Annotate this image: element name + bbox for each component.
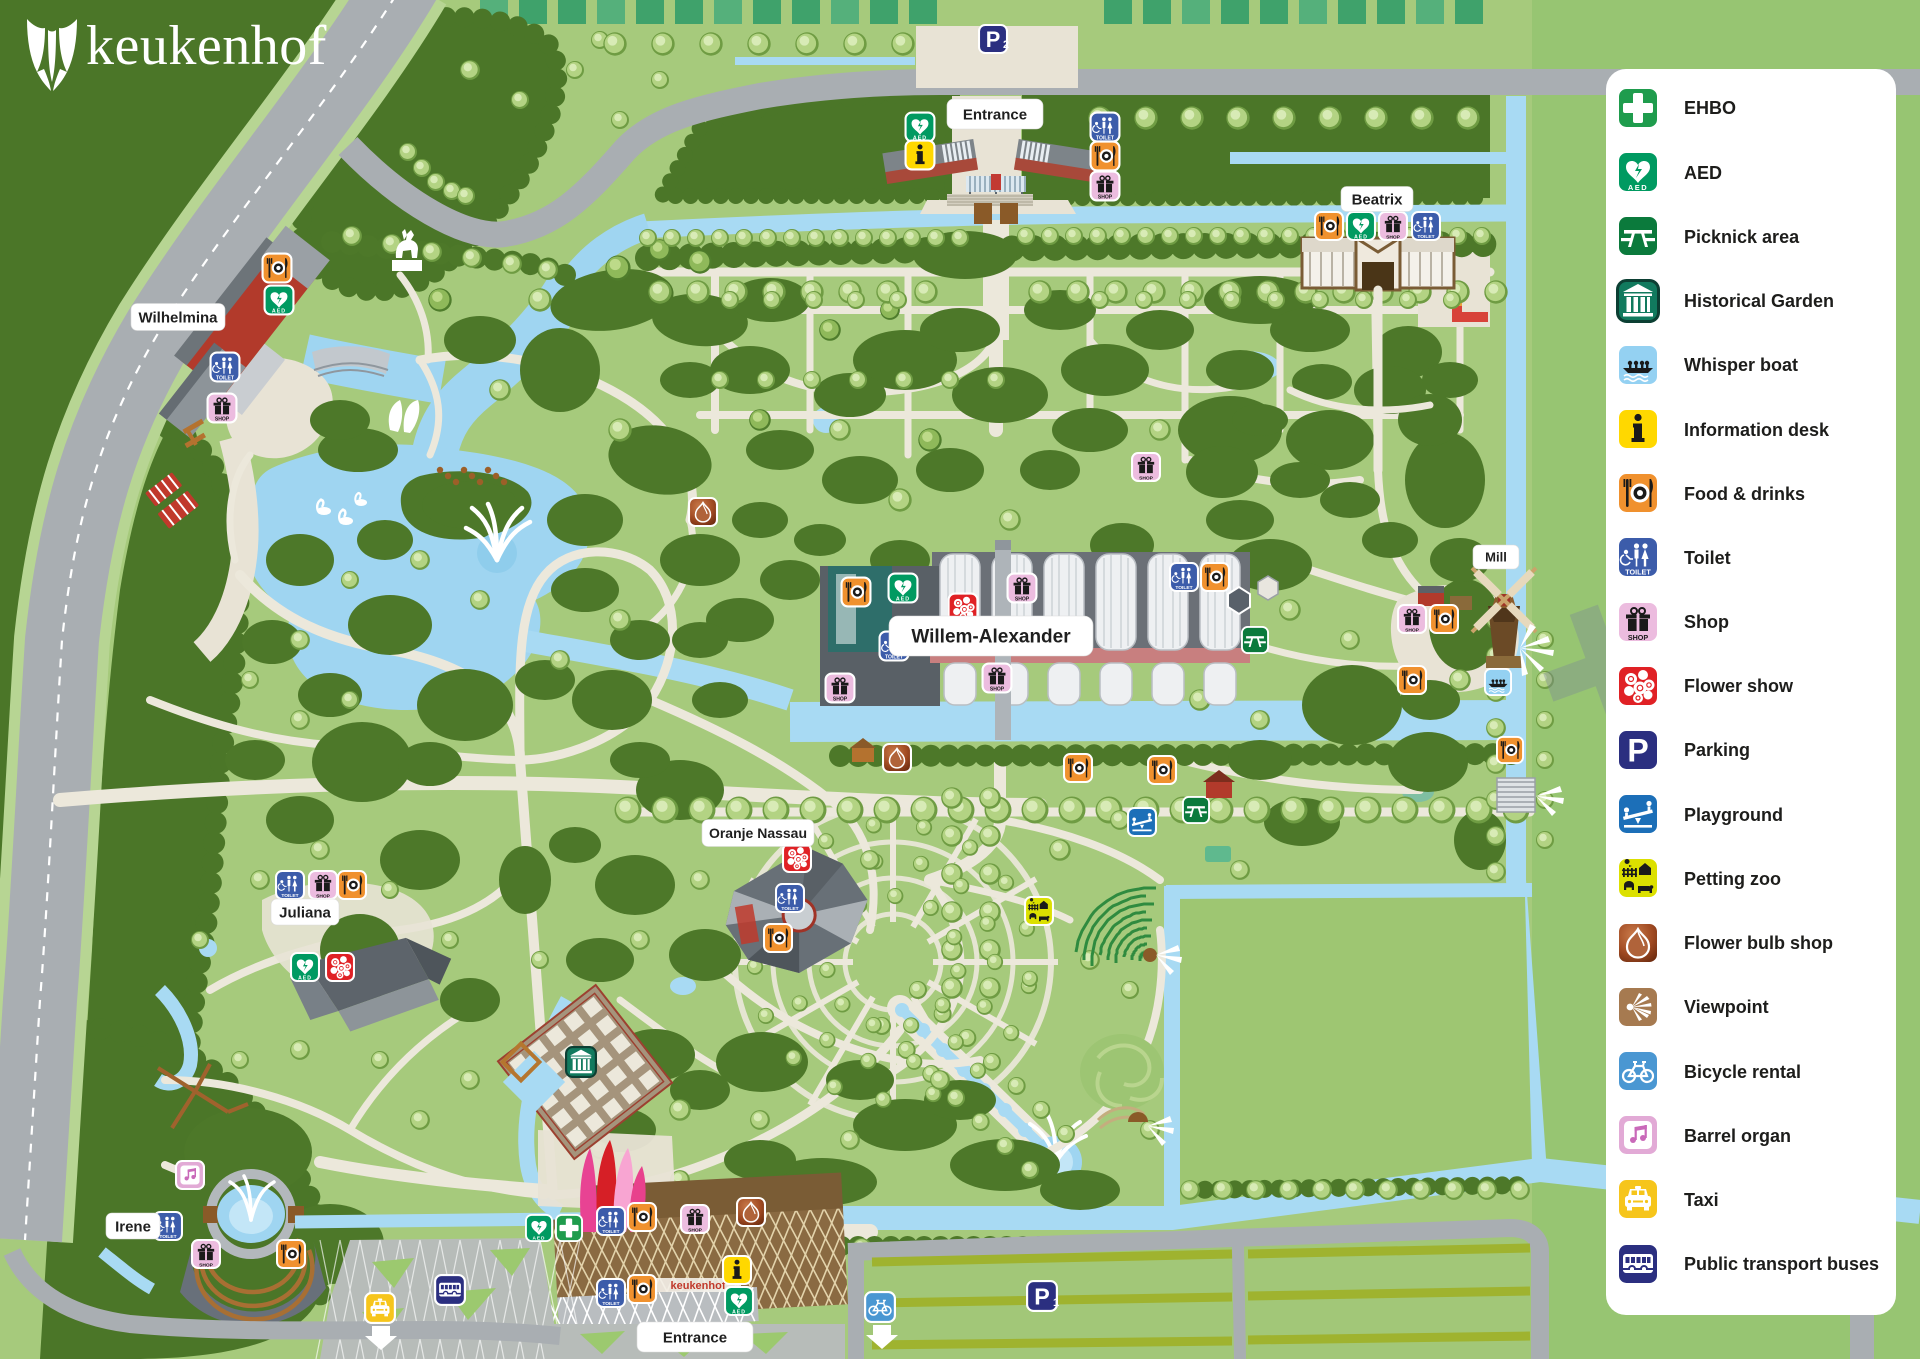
svg-text:Bicycle rental: Bicycle rental [1684, 1062, 1801, 1082]
svg-text:keukenhof: keukenhof [86, 15, 327, 77]
svg-text:Historical Garden: Historical Garden [1684, 291, 1834, 311]
svg-text:Playground: Playground [1684, 805, 1783, 825]
svg-text:Beatrix: Beatrix [1352, 191, 1404, 208]
svg-text:Toilet: Toilet [1684, 548, 1731, 568]
svg-text:EHBO: EHBO [1684, 98, 1736, 118]
svg-text:Whisper boat: Whisper boat [1684, 355, 1798, 375]
svg-text:Public transport buses: Public transport buses [1684, 1254, 1879, 1274]
svg-text:Picknick area: Picknick area [1684, 227, 1800, 247]
svg-text:Viewpoint: Viewpoint [1684, 997, 1769, 1017]
svg-text:Food & drinks: Food & drinks [1684, 484, 1805, 504]
svg-text:Entrance: Entrance [963, 106, 1027, 123]
svg-text:Barrel organ: Barrel organ [1684, 1126, 1791, 1146]
svg-text:Flower show: Flower show [1684, 676, 1794, 696]
svg-text:Petting zoo: Petting zoo [1684, 869, 1781, 889]
svg-text:1: 1 [1053, 1297, 1059, 1309]
svg-text:Irene: Irene [115, 1218, 151, 1235]
svg-text:Mill: Mill [1485, 550, 1507, 565]
svg-text:Parking: Parking [1684, 740, 1750, 760]
svg-text:Shop: Shop [1684, 612, 1729, 632]
svg-text:Juliana: Juliana [279, 904, 331, 921]
svg-text:Flower bulb shop: Flower bulb shop [1684, 933, 1833, 953]
svg-text:Taxi: Taxi [1684, 1190, 1719, 1210]
svg-text:Willem-Alexander: Willem-Alexander [911, 627, 1071, 648]
svg-text:keukenhof: keukenhof [670, 1280, 725, 1292]
svg-text:Wilhelmina: Wilhelmina [138, 309, 218, 326]
svg-text:Oranje Nassau: Oranje Nassau [709, 825, 807, 841]
svg-text:Entrance: Entrance [663, 1329, 727, 1346]
svg-text:2: 2 [1003, 39, 1009, 51]
svg-text:Information desk: Information desk [1684, 420, 1830, 440]
svg-text:AED: AED [1684, 163, 1722, 183]
